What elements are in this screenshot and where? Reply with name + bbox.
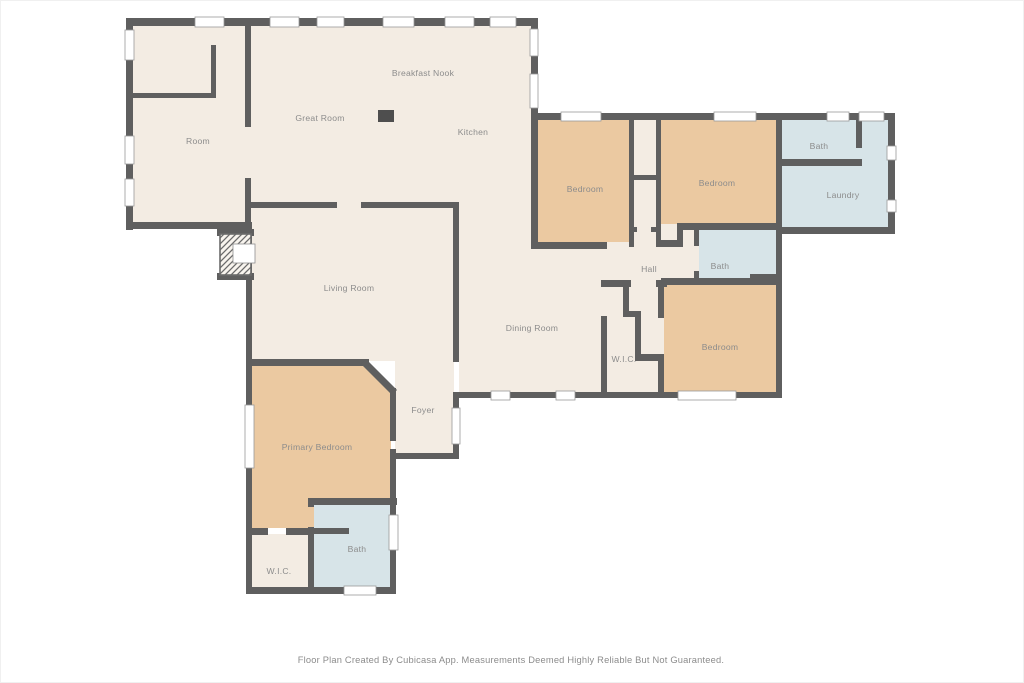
floor-bedroom-1 xyxy=(538,119,629,242)
window-marker xyxy=(561,112,601,121)
wall xyxy=(245,18,251,127)
room-label-living-room: Living Room xyxy=(324,283,375,293)
room-label-room: Room xyxy=(186,136,210,146)
room-label-great-room: Great Room xyxy=(295,113,344,123)
wall xyxy=(629,227,637,232)
floorplan-svg: Room Great Room Breakfast Nook Kitchen B… xyxy=(1,1,1024,683)
wall xyxy=(246,528,268,535)
window-marker xyxy=(678,391,736,400)
wall xyxy=(601,316,607,398)
floor-wic-bottom xyxy=(249,534,308,588)
window-marker xyxy=(125,30,134,60)
floor-bath-upper-laundry xyxy=(782,119,888,227)
room-label-laundry: Laundry xyxy=(827,190,860,200)
wall xyxy=(651,227,661,232)
wall xyxy=(888,113,895,234)
room-label-bath-upper: Bath xyxy=(810,141,829,151)
window-marker xyxy=(125,136,134,164)
window-marker xyxy=(344,586,376,595)
room-label-bedroom-1: Bedroom xyxy=(567,184,604,194)
wall xyxy=(658,240,682,247)
window-marker xyxy=(491,391,510,400)
wall xyxy=(129,93,216,98)
window-marker xyxy=(383,17,414,27)
wall xyxy=(658,280,664,318)
window-marker xyxy=(452,408,460,444)
room-label-bedroom-2: Bedroom xyxy=(699,178,736,188)
wall xyxy=(395,453,458,459)
window-marker xyxy=(827,112,849,121)
wall xyxy=(390,388,396,441)
wall xyxy=(776,227,895,234)
window-marker xyxy=(887,200,896,212)
wall xyxy=(126,222,252,229)
window-marker xyxy=(490,17,516,27)
wall xyxy=(249,359,369,366)
room-fills xyxy=(131,24,888,589)
floor-bedroom-2 xyxy=(661,119,776,224)
wall xyxy=(658,354,664,398)
wall xyxy=(311,528,349,534)
window-marker xyxy=(714,112,756,121)
window-marker xyxy=(125,179,134,206)
window-marker xyxy=(270,17,299,27)
window-marker xyxy=(530,29,538,56)
window-marker xyxy=(556,391,575,400)
floor-bedroom-3 xyxy=(664,285,776,392)
window-marker xyxy=(530,74,538,108)
floor-bath-middle xyxy=(699,230,776,279)
wall xyxy=(776,113,782,398)
room-label-wic-bottom: W.I.C. xyxy=(267,566,292,576)
wall xyxy=(361,202,459,208)
wall xyxy=(750,274,776,284)
window-marker xyxy=(245,405,254,468)
wall xyxy=(308,527,314,594)
footer-disclaimer: Floor Plan Created By Cubicasa App. Meas… xyxy=(298,655,724,665)
wall xyxy=(249,202,337,208)
window-marker xyxy=(317,17,344,27)
wall xyxy=(694,230,699,246)
room-label-hall: Hall xyxy=(641,264,657,274)
wall xyxy=(308,498,314,507)
wall xyxy=(211,45,216,97)
window-marker xyxy=(389,515,398,550)
kitchen-fixture xyxy=(378,110,394,122)
fireplace-firebox xyxy=(233,244,255,263)
wall xyxy=(629,175,661,180)
room-label-wic-right: W.I.C. xyxy=(612,354,637,364)
wall xyxy=(531,242,607,249)
wall xyxy=(677,223,776,230)
window-marker xyxy=(887,146,896,160)
room-label-bath-bottom: Bath xyxy=(348,544,367,554)
room-label-primary-bedroom: Primary Bedroom xyxy=(282,442,353,452)
window-marker xyxy=(859,112,884,121)
room-label-breakfast-nook: Breakfast Nook xyxy=(392,68,455,78)
fireplace xyxy=(217,229,255,280)
room-label-bedroom-3: Bedroom xyxy=(702,342,739,352)
room-label-kitchen: Kitchen xyxy=(458,127,488,137)
window-marker xyxy=(445,17,474,27)
room-label-dining-room: Dining Room xyxy=(506,323,558,333)
wall xyxy=(453,202,459,362)
wall xyxy=(308,498,397,505)
room-label-bath-middle: Bath xyxy=(711,261,730,271)
window-marker xyxy=(195,17,224,27)
room-label-foyer: Foyer xyxy=(411,405,434,415)
wall xyxy=(779,159,862,166)
floorplan-page: Room Great Room Breakfast Nook Kitchen B… xyxy=(0,0,1024,683)
